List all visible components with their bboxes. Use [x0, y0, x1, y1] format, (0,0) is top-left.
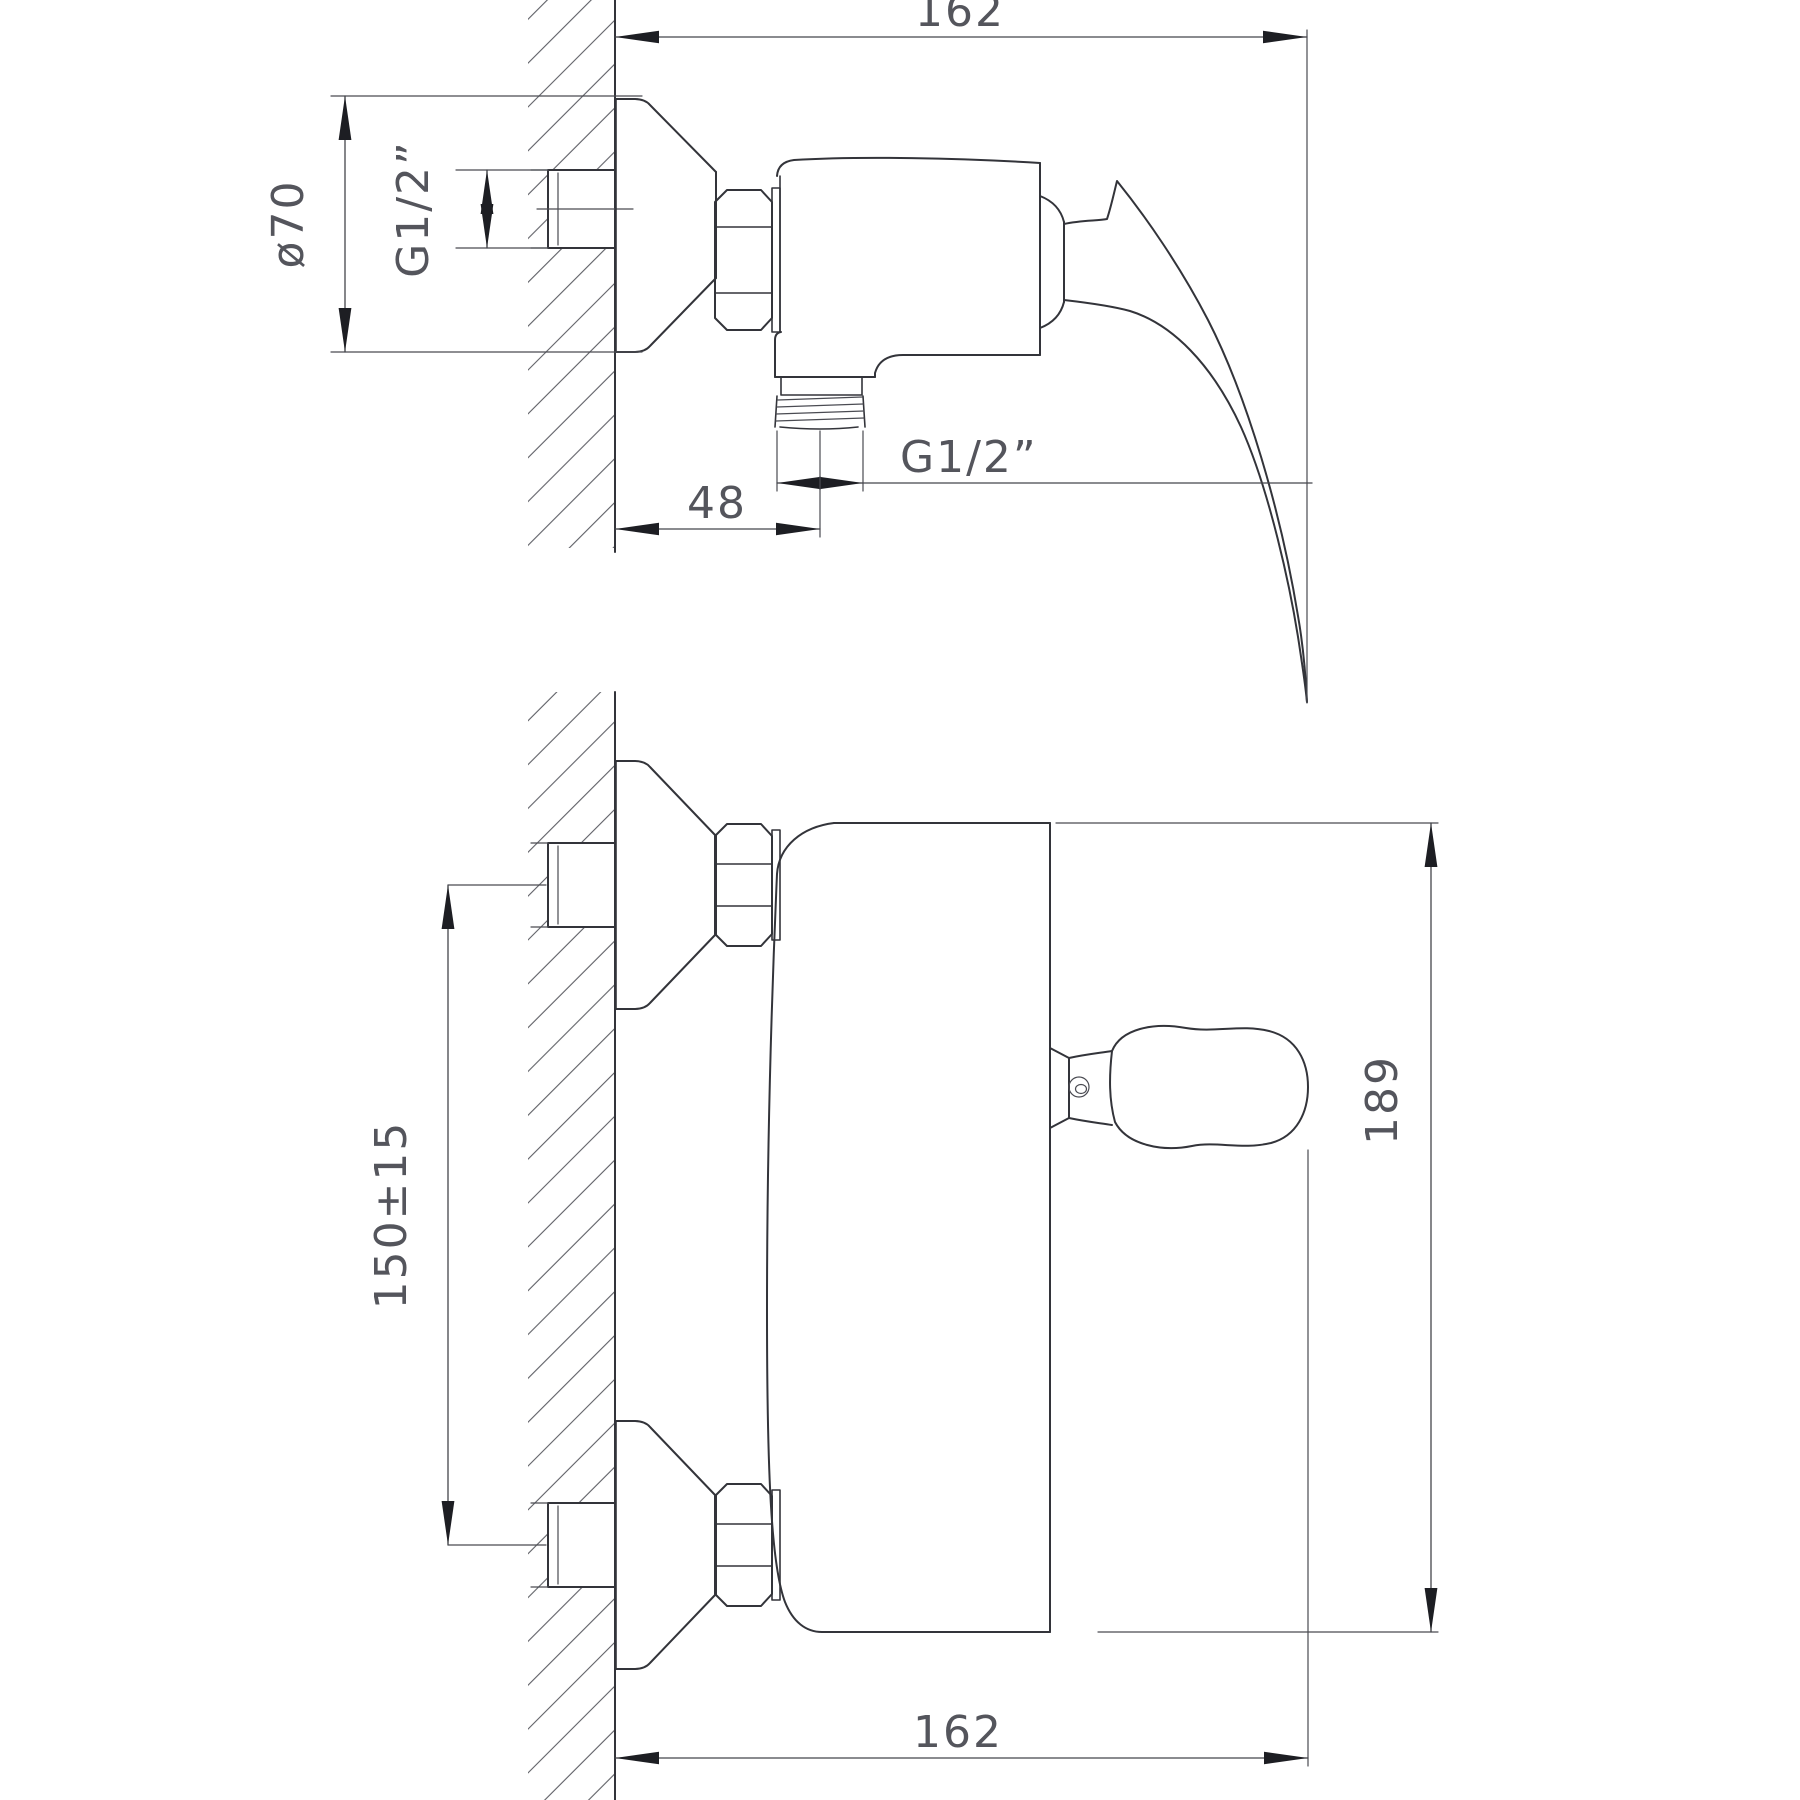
lever-handle	[1040, 181, 1307, 702]
dim-label-outlet-offset: 48	[687, 478, 747, 529]
handle-knob-front	[1050, 1026, 1308, 1148]
dim-outlet-thread: G1/2”	[777, 431, 1312, 491]
dim-label-side-width: 162	[915, 0, 1005, 37]
washer	[772, 188, 780, 332]
wall-hatch	[528, 0, 615, 548]
dim-label-wall-thread: G1/2”	[388, 140, 439, 278]
mixer-body-front	[767, 823, 1050, 1632]
dim-label-flange-diameter: ø70	[263, 180, 314, 269]
front-view: 150±15 189 162	[366, 692, 1438, 1800]
technical-drawing: 162 ø70 G1/2” G1/2”	[0, 0, 1800, 1800]
dim-label-outlet-thread: G1/2”	[900, 432, 1038, 483]
mixer-body	[775, 158, 1040, 377]
dim-front-width: 162	[615, 1150, 1308, 1766]
dim-label-front-width: 162	[913, 1707, 1003, 1758]
dim-front-height: 189	[1056, 823, 1438, 1632]
side-view: 162 ø70 G1/2” G1/2”	[263, 0, 1312, 703]
dim-label-inlet-spacing: 150±15	[366, 1121, 417, 1310]
dim-inlet-spacing: 150±15	[366, 885, 546, 1545]
dim-wall-thread: G1/2”	[388, 140, 548, 278]
drawing-sheet: 162 ø70 G1/2” G1/2”	[0, 0, 1800, 1800]
hex-nut	[715, 190, 772, 330]
dim-label-front-height: 189	[1357, 1055, 1408, 1145]
shower-outlet-thread	[775, 377, 865, 429]
wall-flange	[616, 99, 716, 352]
dim-side-width: 162	[615, 0, 1307, 703]
